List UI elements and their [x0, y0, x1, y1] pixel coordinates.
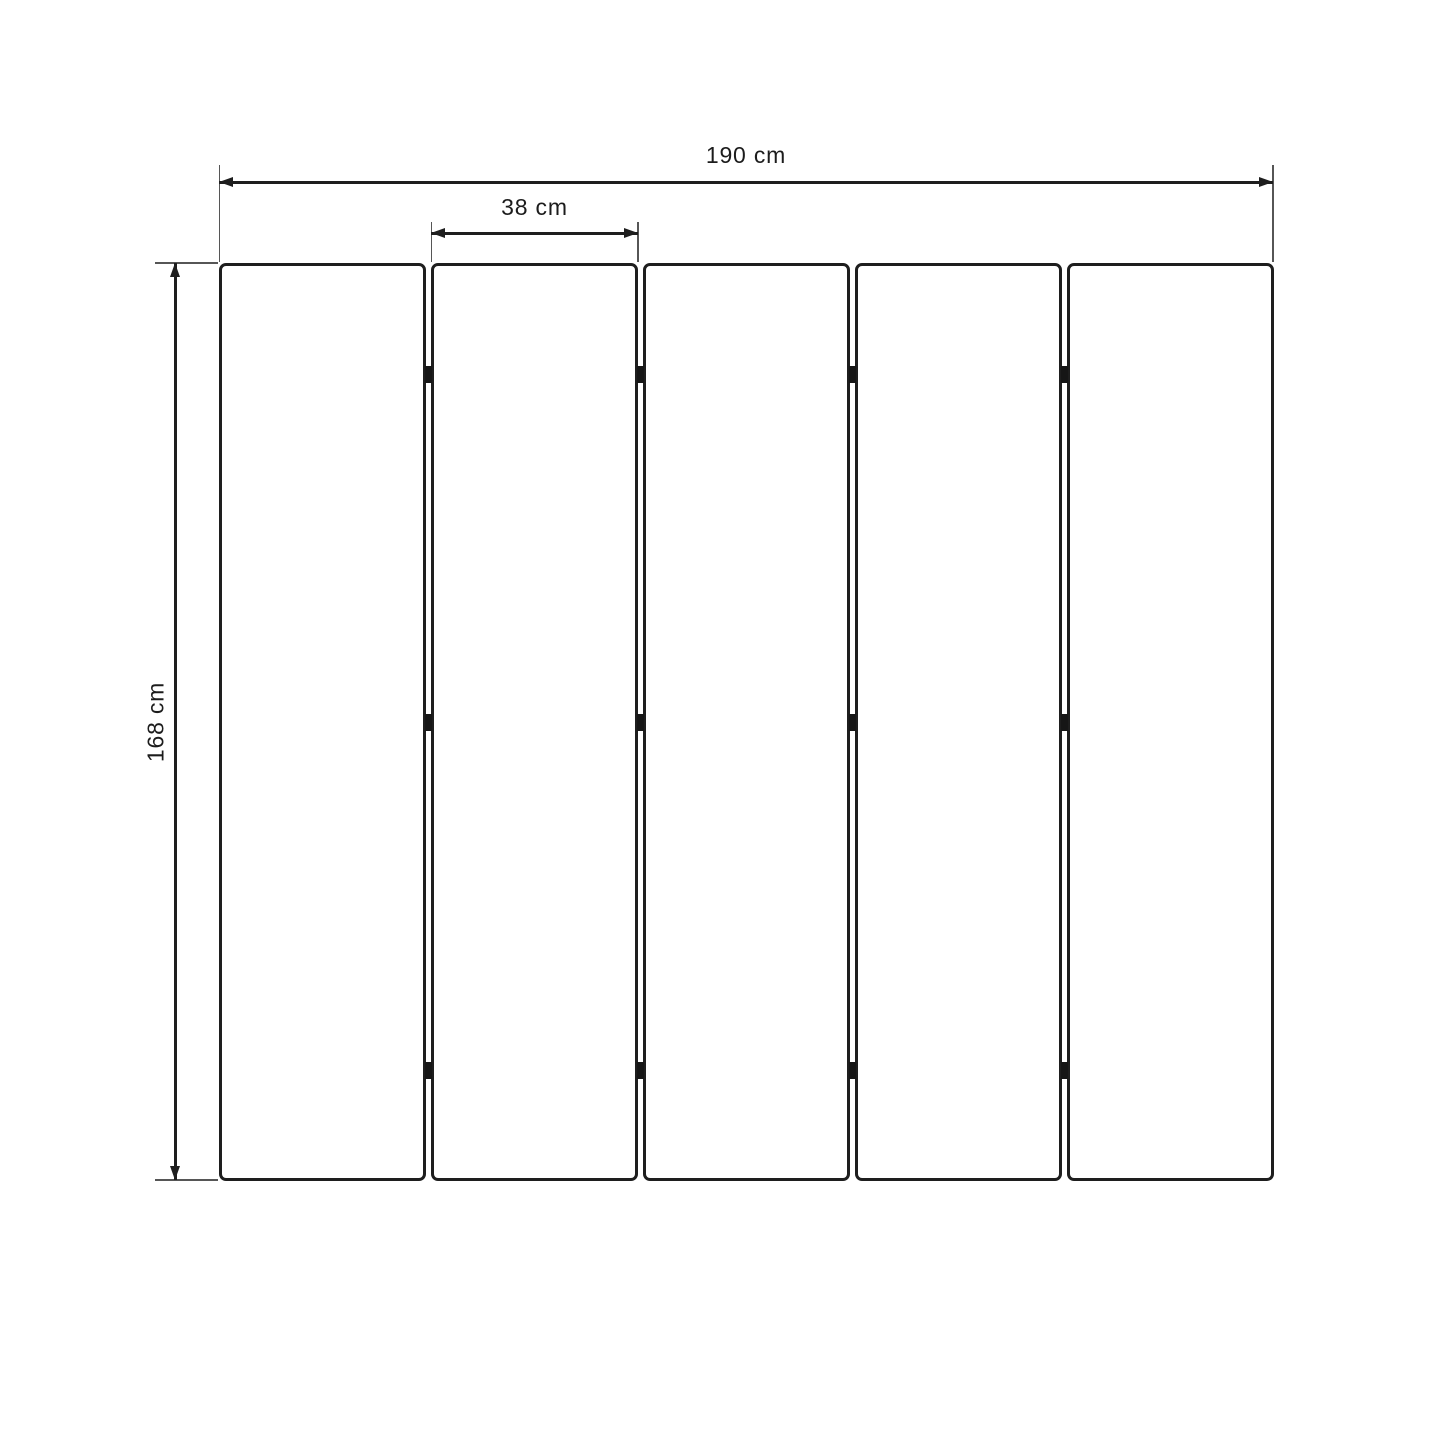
- panel-width-label: 38 cm: [431, 194, 638, 221]
- hinge: [849, 366, 856, 383]
- extension-line: [155, 1179, 218, 1181]
- hinge: [1061, 366, 1068, 383]
- total-width-label: 190 cm: [219, 142, 1273, 169]
- dimension-line: [174, 263, 177, 1180]
- arrow-left-icon: [431, 228, 445, 238]
- arrow-left-icon: [219, 177, 233, 187]
- diagram-canvas: 190 cm 38 cm 168 cm: [0, 0, 1445, 1445]
- hinge: [1061, 1062, 1068, 1079]
- panel-2: [431, 263, 638, 1181]
- hinge: [849, 714, 856, 731]
- extension-line: [155, 262, 218, 264]
- panel-4: [855, 263, 1062, 1181]
- hinge: [637, 1062, 644, 1079]
- arrow-right-icon: [1259, 177, 1273, 187]
- hinge: [637, 366, 644, 383]
- arrow-right-icon: [624, 228, 638, 238]
- hinge: [425, 366, 432, 383]
- hinge: [425, 1062, 432, 1079]
- arrow-up-icon: [170, 263, 180, 277]
- arrow-down-icon: [170, 1166, 180, 1180]
- panel-3: [643, 263, 850, 1181]
- hinge: [1061, 714, 1068, 731]
- hinge: [637, 714, 644, 731]
- dimension-line: [219, 181, 1273, 184]
- hinge: [849, 1062, 856, 1079]
- dimension-line: [431, 232, 638, 235]
- height-label: 168 cm: [143, 682, 170, 762]
- panel-5: [1067, 263, 1274, 1181]
- hinge: [425, 714, 432, 731]
- panel-1: [219, 263, 426, 1181]
